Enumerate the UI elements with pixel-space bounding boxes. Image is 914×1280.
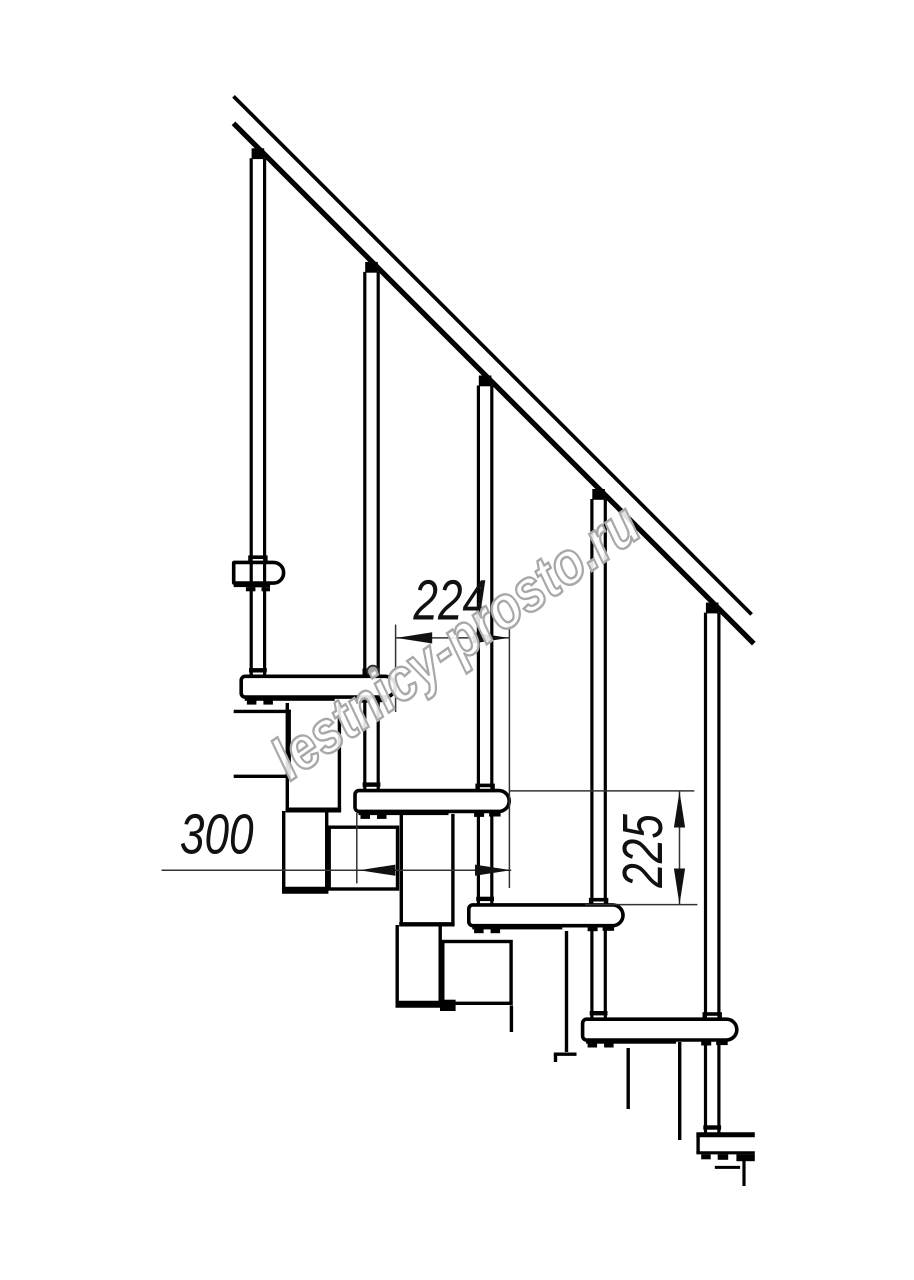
svg-text:300: 300	[180, 802, 254, 866]
svg-text:225: 225	[611, 814, 675, 889]
